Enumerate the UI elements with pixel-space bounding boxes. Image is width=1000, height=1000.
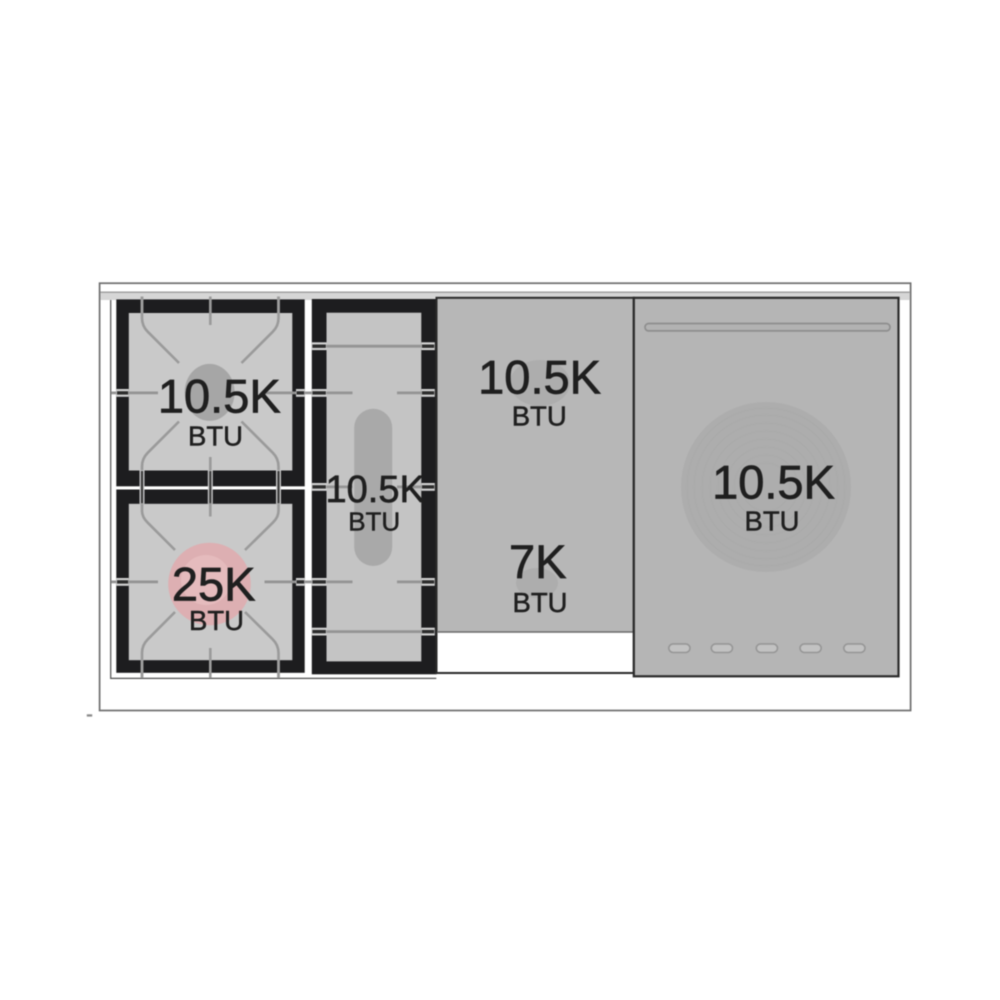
svg-text:25K: 25K <box>172 558 256 611</box>
svg-text:BTU: BTU <box>513 587 568 618</box>
svg-text:10.5K: 10.5K <box>158 370 281 423</box>
svg-text:10.5K: 10.5K <box>478 351 601 404</box>
svg-text:BTU: BTU <box>188 420 243 451</box>
svg-text:BTU: BTU <box>189 605 244 636</box>
svg-text:7K: 7K <box>509 535 567 588</box>
svg-text:BTU: BTU <box>512 400 567 431</box>
svg-text:BTU: BTU <box>745 506 800 537</box>
svg-text:10.5K: 10.5K <box>326 469 425 511</box>
svg-text:BTU: BTU <box>348 507 400 537</box>
svg-text:10.5K: 10.5K <box>712 456 835 509</box>
